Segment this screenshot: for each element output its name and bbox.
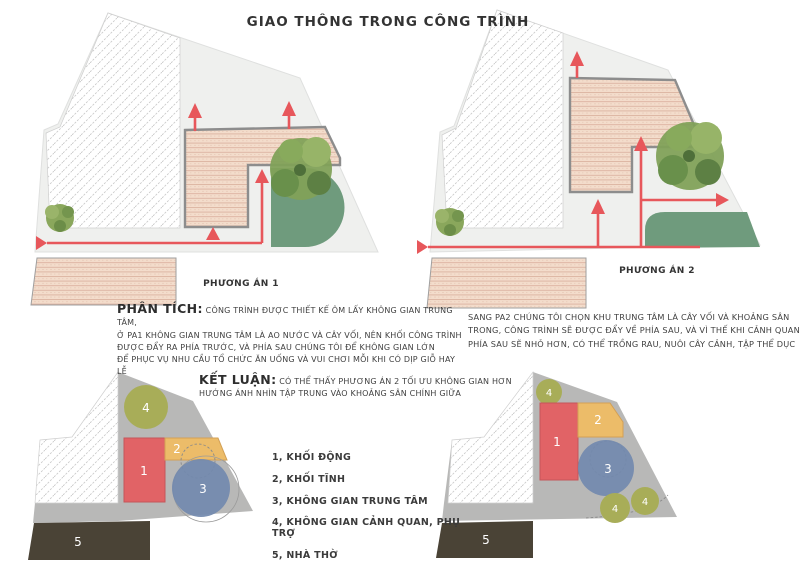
zone3-number: 3	[604, 462, 612, 476]
legend-item-1: 1, KHỐI ĐỘNG	[272, 452, 482, 463]
presentation-board: 4 1 2 3 5 4 1 2 3	[0, 0, 800, 566]
analysis-pa2-body: SANG PA2 CHÚNG TÔI CHỌN KHU TRUNG TÂM LÀ…	[468, 312, 800, 349]
tree-icon	[656, 122, 724, 190]
zone5-church	[28, 521, 150, 560]
analysis-heading: PHÂN TÍCH:	[117, 301, 203, 316]
zone2-number: 2	[173, 442, 181, 456]
zone4a-number: 4	[612, 504, 618, 515]
conclusion-paragraph: KẾT LUẬN: CÓ THỂ THẤY PHƯƠNG ÁN 2 TỐI ƯU…	[199, 374, 519, 401]
analysis-body: CÔNG TRÌNH ĐƯỢC THIẾT KẾ ÔM LẤY KHÔNG GI…	[117, 306, 462, 376]
plan2-garden-green	[645, 212, 760, 248]
legend-item-5: 5, NHÀ THỜ	[272, 550, 482, 561]
plan2-site-group	[417, 10, 760, 308]
zoning1-neighbor-hatch	[35, 372, 118, 503]
page-title: GIAO THÔNG TRONG CÔNG TRÌNH	[88, 14, 688, 30]
plan2-paved-road	[427, 258, 586, 308]
plan1-paved-road	[31, 258, 176, 305]
plan2-label: PHƯƠNG ÁN 2	[592, 266, 722, 276]
zone1-number: 1	[140, 464, 148, 478]
plan1-diagram	[0, 0, 400, 312]
legend-item-2: 2, KHỐI TĨNH	[272, 474, 482, 485]
zone3-number: 3	[199, 482, 207, 496]
entry-arrowhead	[417, 240, 428, 254]
zone5-number: 5	[74, 535, 82, 549]
legend-item-4: 4, KHÔNG GIAN CẢNH QUAN, PHỤ TRỢ	[272, 517, 482, 539]
plan2-neighbor-hatch	[442, 10, 563, 228]
plan1-site-group	[31, 13, 378, 305]
plan1-neighbor-hatch	[46, 13, 180, 228]
zone4-number: 4	[142, 401, 150, 415]
conclusion-heading: KẾT LUẬN:	[199, 372, 277, 387]
legend: 1, KHỐI ĐỘNG 2, KHỐI TĨNH 3, KHÔNG GIAN …	[272, 452, 482, 566]
zone5-number: 5	[482, 533, 490, 547]
analysis-pa2-paragraph: SANG PA2 CHÚNG TÔI CHỌN KHU TRUNG TÂM LÀ…	[468, 311, 800, 351]
zone2-number: 2	[594, 413, 602, 427]
analysis-paragraph: PHÂN TÍCH: CÔNG TRÌNH ĐƯỢC THIẾT KẾ ÔM L…	[117, 303, 463, 379]
zone4b-number: 4	[642, 497, 648, 508]
plan1-label: PHƯƠNG ÁN 1	[176, 279, 306, 289]
zone1-number: 1	[553, 435, 561, 449]
legend-item-3: 3, KHÔNG GIAN TRUNG TÂM	[272, 496, 482, 507]
zone4-number: 4	[546, 388, 552, 399]
